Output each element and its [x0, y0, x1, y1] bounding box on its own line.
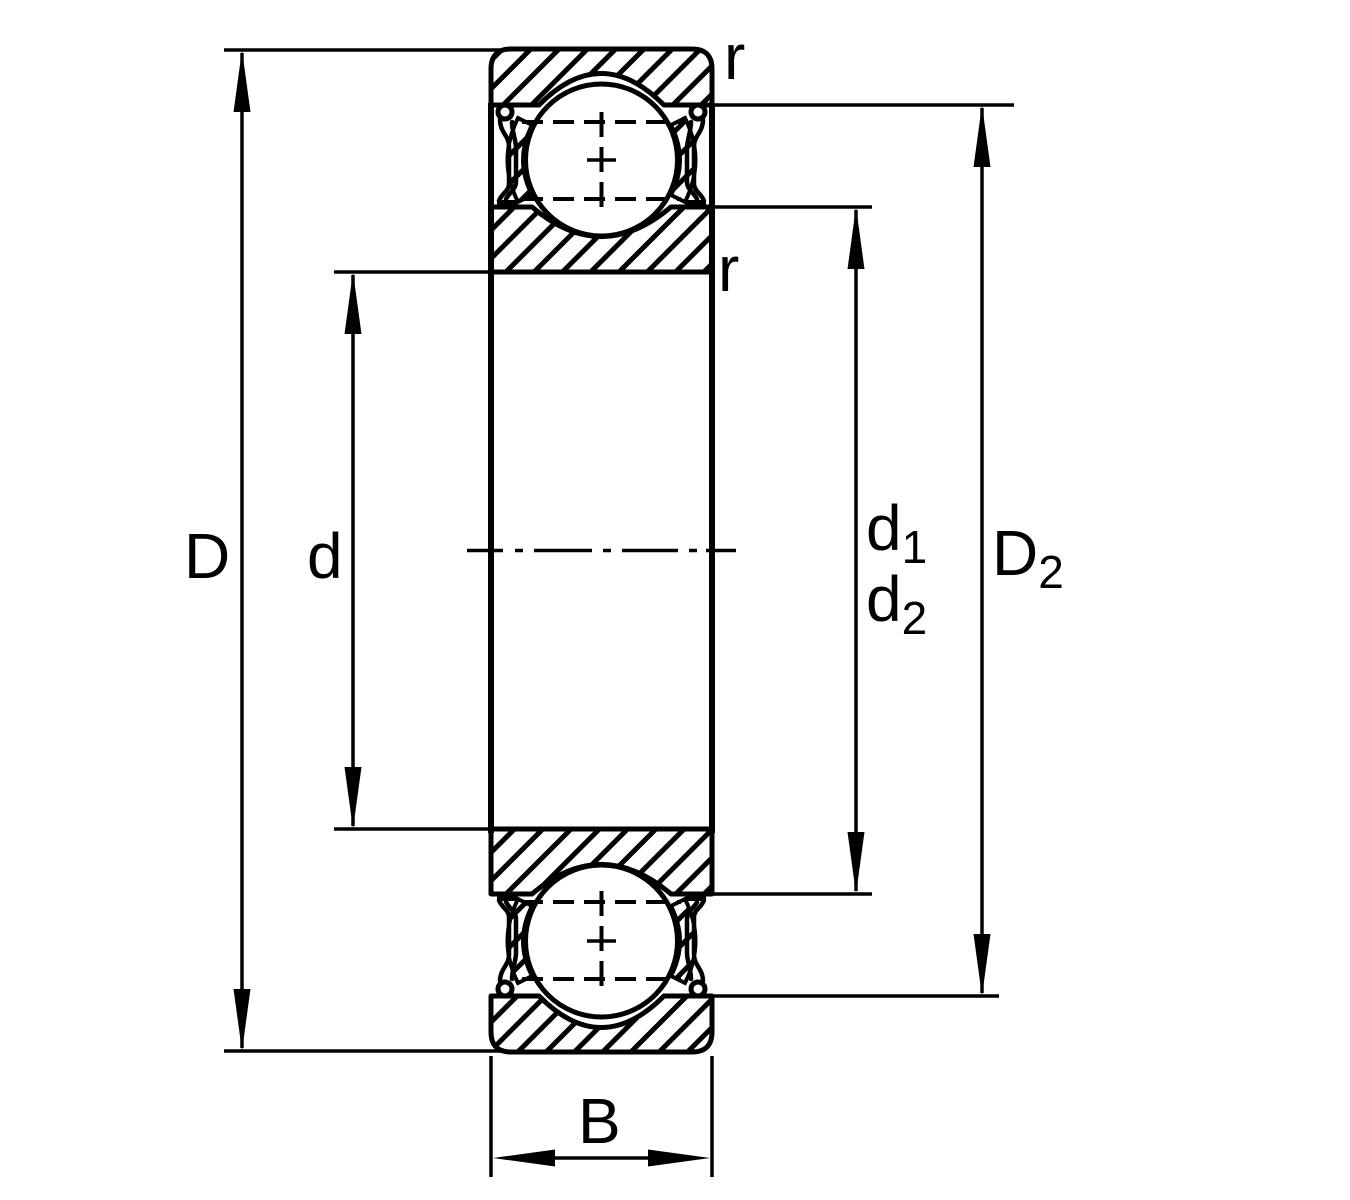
- shield-bottom-left: [497, 898, 517, 996]
- shield-top-left: [497, 105, 517, 203]
- shield-anchor-hook-icon: [691, 982, 705, 996]
- arrowhead-up-icon: [345, 272, 362, 334]
- shield-anchor-hook-icon: [498, 105, 512, 119]
- label-width: B: [578, 1089, 621, 1153]
- bearing-drawing: [0, 0, 1350, 1200]
- dimension-D: [224, 50, 505, 1051]
- arrowhead-up-icon: [234, 50, 251, 112]
- arrowhead-down-icon: [234, 989, 251, 1051]
- dimension-D2: [709, 105, 1014, 996]
- bearing-cross-section: [467, 49, 736, 1052]
- arrowhead-down-icon: [345, 767, 362, 829]
- arrowhead-up-icon: [974, 105, 991, 167]
- bearing-dimension-diagram: D d d1 d2 D2 B r r: [0, 0, 1350, 1200]
- label-outer-diameter: D: [184, 524, 230, 588]
- arrowhead-left-icon: [493, 1150, 555, 1167]
- shield-anchor-hook-icon: [691, 105, 705, 119]
- label-bore-diameter: d: [307, 524, 343, 588]
- shield-anchor-hook-icon: [498, 982, 512, 996]
- arrowhead-down-icon: [848, 832, 865, 894]
- shield-bottom-right: [686, 898, 706, 996]
- label-d2: d2: [866, 567, 927, 641]
- label-chamfer-radius-outer: r: [724, 25, 745, 89]
- label-chamfer-radius-inner: r: [718, 237, 739, 301]
- label-D2: D2: [992, 521, 1064, 595]
- label-d1: d1: [866, 496, 927, 570]
- arrowhead-right-icon: [648, 1150, 710, 1167]
- arrowhead-up-icon: [848, 207, 865, 269]
- arrowhead-down-icon: [974, 934, 991, 996]
- shield-top-right: [686, 105, 706, 203]
